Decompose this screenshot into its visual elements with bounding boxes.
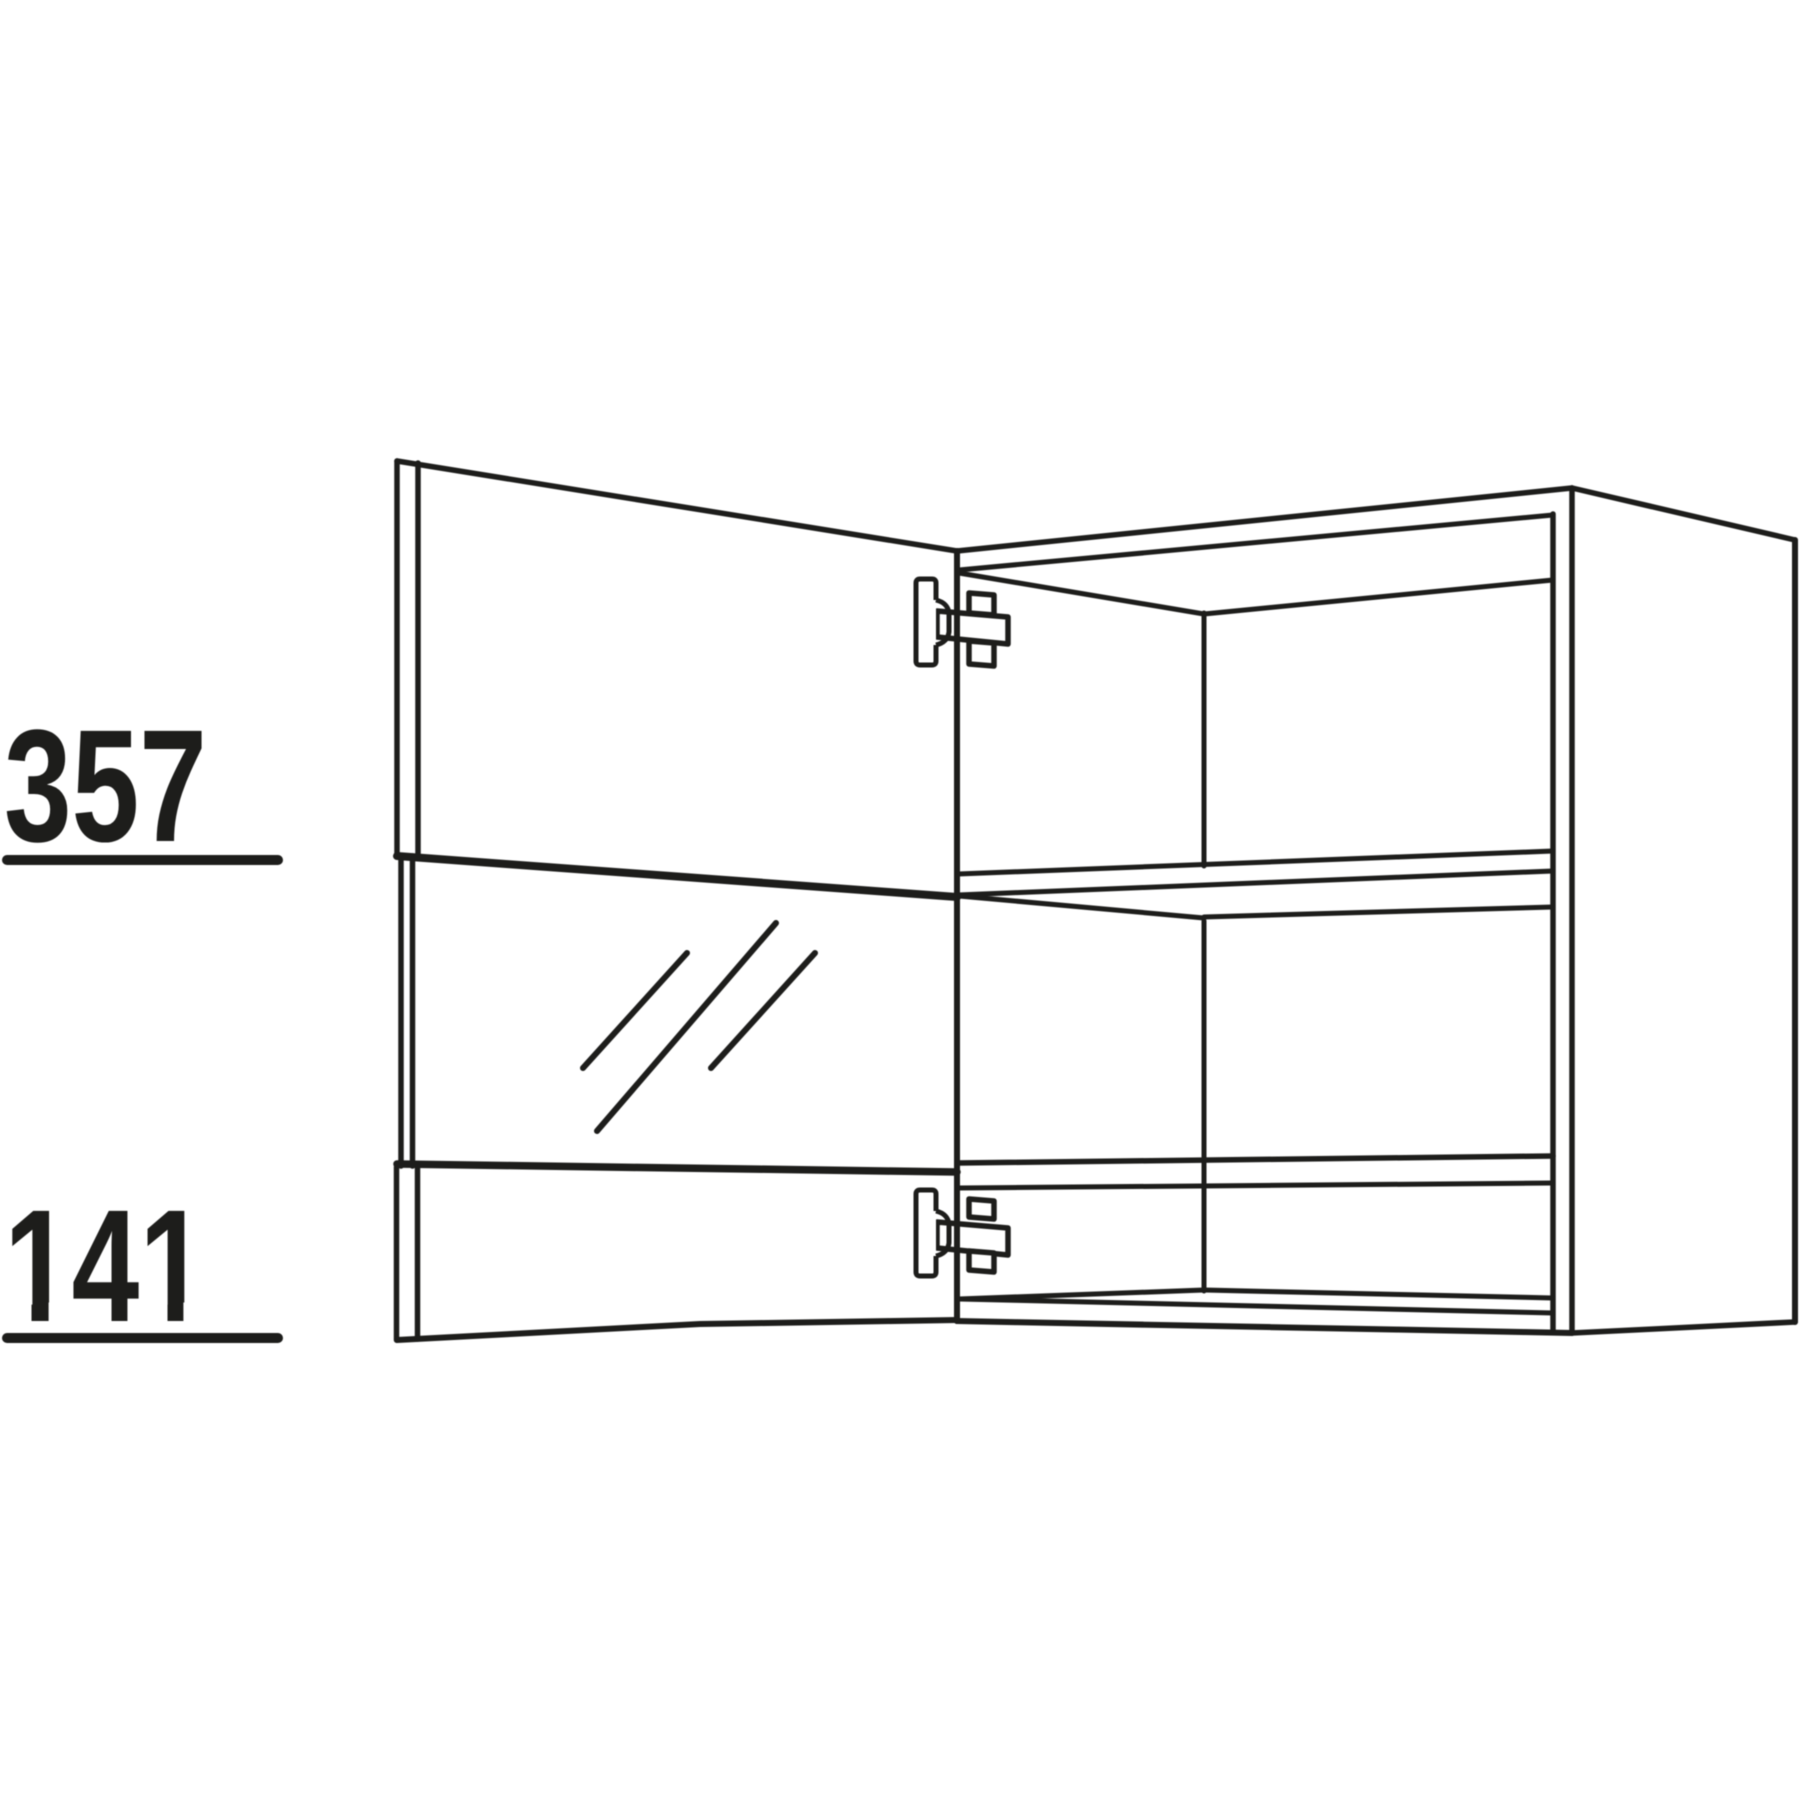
svg-text:141: 141 (4, 1177, 207, 1356)
svg-text:357: 357 (4, 697, 207, 876)
